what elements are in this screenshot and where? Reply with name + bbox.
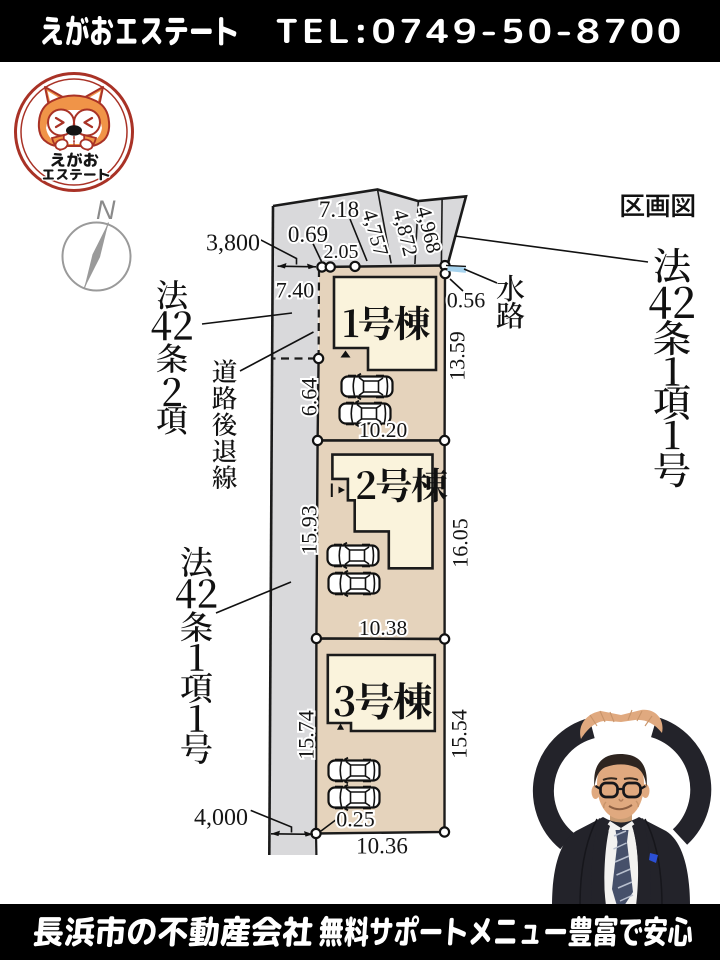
svg-text:15.54: 15.54	[447, 709, 472, 759]
svg-text:10.36: 10.36	[356, 834, 408, 859]
svg-text:15.74: 15.74	[294, 710, 319, 760]
svg-text:7.40: 7.40	[276, 278, 315, 303]
svg-text:3,800: 3,800	[206, 231, 260, 257]
svg-text:7.18: 7.18	[319, 197, 359, 222]
svg-text:13.59: 13.59	[445, 331, 470, 381]
svg-text:10.38: 10.38	[359, 616, 407, 640]
svg-text:16.05: 16.05	[448, 518, 473, 568]
svg-text:4,000: 4,000	[194, 805, 248, 831]
svg-text:6.64: 6.64	[297, 378, 322, 417]
svg-text:2.05: 2.05	[324, 241, 359, 263]
svg-text:0.56: 0.56	[447, 288, 486, 313]
svg-text:0.25: 0.25	[336, 807, 375, 832]
svg-text:10.20: 10.20	[359, 418, 407, 442]
svg-text:N: N	[96, 195, 116, 225]
svg-text:15.93: 15.93	[297, 505, 322, 555]
svg-text:0.69: 0.69	[288, 222, 328, 247]
